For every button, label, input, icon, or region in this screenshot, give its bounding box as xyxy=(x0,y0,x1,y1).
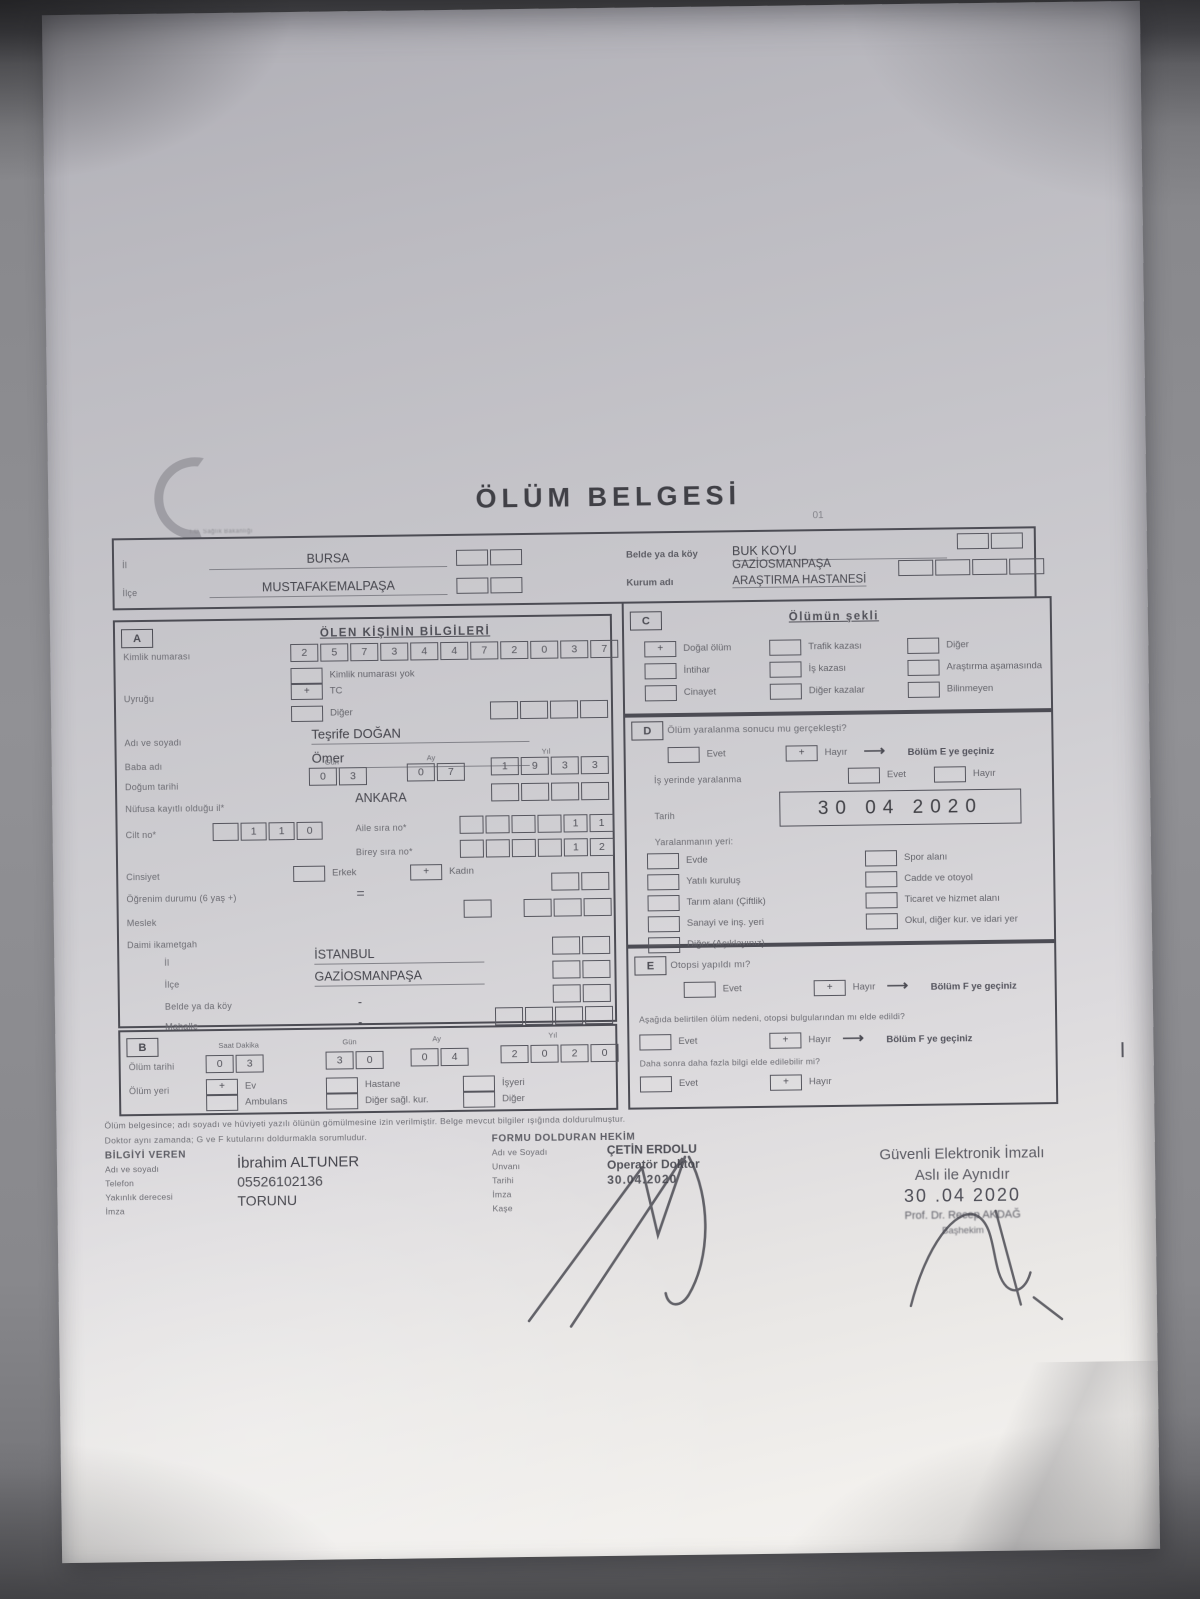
nationality-code-boxes xyxy=(490,700,608,720)
at-home-option: Evde xyxy=(647,852,765,869)
digit-box xyxy=(553,984,581,1002)
digit-box: 0 xyxy=(590,1044,618,1062)
checkbox xyxy=(907,637,939,653)
informant-phone-label: Telefon xyxy=(105,1178,134,1188)
occupation-label: Meslek xyxy=(127,918,157,928)
digit-box: 1 xyxy=(241,822,267,840)
trade-service-area-label: Ticaret ve hizmet alanı xyxy=(904,893,999,905)
ilce-value: MUSTAFAKEMALPAŞA xyxy=(262,579,395,595)
arrow-icon: ⟶ xyxy=(887,981,909,991)
il-value: BURSA xyxy=(306,551,349,566)
ilce-code-boxes xyxy=(456,577,522,594)
digit-box: 1 xyxy=(564,838,588,856)
digit-box: 4 xyxy=(440,1048,468,1066)
digit-box: 3 xyxy=(380,643,408,661)
goto-section-e-note: Bölüm E ye geçiniz xyxy=(908,746,995,758)
registry-province-label: Nüfusa kayıtlı olduğu il* xyxy=(125,803,224,814)
digit-box: 2 xyxy=(290,644,318,662)
digit-box xyxy=(552,936,580,954)
il-code-boxes xyxy=(456,549,522,566)
residence-belde-value: - xyxy=(358,995,362,1009)
checkbox-checked: + xyxy=(291,683,323,699)
code-box xyxy=(935,559,970,575)
occupation-code-boxes xyxy=(524,898,612,917)
findings-yes-option: Evet xyxy=(639,1034,697,1050)
stamp-line-1: Güvenli Elektronik İmzalı xyxy=(837,1144,1087,1164)
arrow-icon: ⟶ xyxy=(864,746,886,756)
education-value: = xyxy=(356,885,364,901)
natural-death-label: Doğal ölüm xyxy=(683,642,731,654)
digit-box xyxy=(495,1007,523,1025)
other-label: Diğer xyxy=(330,707,353,718)
digit-box: 1 xyxy=(268,822,294,840)
year-header: Yıl xyxy=(548,1031,557,1040)
checkbox xyxy=(647,852,679,868)
id-number-boxes: 2 5 7 3 4 4 7 2 0 3 7 xyxy=(290,640,618,662)
page-code: 01 xyxy=(812,510,823,521)
digit-box: 0 xyxy=(407,763,435,781)
section-c-letter: C xyxy=(630,611,662,630)
residential-institution-label: Yatılı kuruluş xyxy=(686,875,740,887)
natural-death-option: + Doğal ölüm xyxy=(644,640,731,656)
school-institution-label: Okul, diğer kur. ve idari yer xyxy=(905,914,1018,926)
residence-ilce-boxes xyxy=(552,960,610,979)
gender-label: Cinsiyet xyxy=(126,872,160,882)
digit-box: 0 xyxy=(296,822,322,840)
digit-box xyxy=(511,815,535,833)
digit-box xyxy=(524,899,552,917)
hospital-label: Hastane xyxy=(365,1079,401,1090)
autopsy-findings-question: Aşağıda belirtilen ölüm nedeni, otopsi b… xyxy=(639,1011,905,1024)
section-b-death-date: B Saat Dakika Gün Ay Yıl Ölüm tarihi 0 3… xyxy=(118,1024,618,1117)
month-header: Ay xyxy=(427,753,436,762)
digit-box: 9 xyxy=(521,757,549,775)
no-label: Hayır xyxy=(853,981,876,992)
section-e-autopsy: E Otopsi yapıldı mı? Evet + Hayır ⟶ Bölü… xyxy=(626,941,1058,1110)
name-label: Adı ve soyadı xyxy=(124,737,181,748)
physician-date-label: Tarihi xyxy=(492,1175,514,1185)
informant-relation-label: Yakınlık derecesi xyxy=(105,1192,173,1203)
death-month-boxes: 0 4 xyxy=(410,1048,468,1067)
residence-il-boxes xyxy=(552,936,610,955)
residence-ilce-value: GAZİOSMANPAŞA xyxy=(314,968,422,983)
education-label: Öğrenim durumu (6 yaş +) xyxy=(126,893,236,904)
checkbox xyxy=(848,767,880,783)
code-box xyxy=(991,532,1023,548)
digit-box: 7 xyxy=(437,763,465,781)
belde-value: BUK KOYU xyxy=(732,543,797,558)
place-hospital-option: Hastane xyxy=(326,1077,401,1093)
checkbox xyxy=(865,850,897,866)
education-code-boxes xyxy=(551,872,609,891)
place-home-option: + Ev xyxy=(206,1079,256,1095)
nationality-tc-option: + TC xyxy=(291,683,343,699)
school-institution-option: Okul, diğer kur. ve idari yer xyxy=(866,912,1018,929)
stray-pen-mark xyxy=(1121,1042,1123,1057)
digit-box xyxy=(538,839,562,857)
no-label: Hayır xyxy=(808,1034,831,1045)
other-label: Diğer xyxy=(946,639,969,650)
nationality-label: Uyruğu xyxy=(124,694,154,704)
section-d-injury: D Ölüm yaralanma sonucu mu gerçekleşti? … xyxy=(623,708,1056,947)
occupation-code-box xyxy=(464,899,492,917)
other-facility-label: Diğer sağl. kur. xyxy=(365,1094,429,1106)
under-investigation-option: Araştırma aşamasında xyxy=(907,658,1042,675)
home-label: Ev xyxy=(245,1081,256,1092)
belde-code-boxes xyxy=(957,532,1023,549)
section-e-letter: E xyxy=(634,956,666,975)
residence-il-value: İSTANBUL xyxy=(314,947,374,962)
checkbox xyxy=(866,913,898,929)
place-other-facility-option: Diğer sağl. kur. xyxy=(326,1092,429,1108)
code-box xyxy=(898,560,933,576)
registry-province-value: ANKARA xyxy=(355,791,407,806)
injury-date-label: Tarih xyxy=(654,811,675,821)
checkbox xyxy=(326,1093,358,1109)
digit-box xyxy=(491,783,519,801)
place-other-option: Diğer xyxy=(463,1091,525,1107)
digit-box xyxy=(490,701,518,719)
checkbox xyxy=(463,1091,495,1107)
digit-box xyxy=(583,984,611,1002)
checkbox xyxy=(291,705,323,721)
checkbox-checked: + xyxy=(769,1032,801,1048)
doctor-responsibility-note: Doktor aynı zamanda; G ve F kutularını d… xyxy=(105,1132,367,1145)
photographed-death-certificate: T.C. Sağlık Bakanlığı ÖLÜM BELGESİ 01 İl… xyxy=(0,0,1200,1599)
more-info-question: Daha sonra daha fazla bilgi elde edilebi… xyxy=(640,1056,821,1068)
birth-day-boxes: 0 3 xyxy=(309,767,367,786)
suicide-label: İntihar xyxy=(683,665,710,676)
homicide-label: Cinayet xyxy=(684,686,716,697)
section-a-deceased-info: A ÖLEN KİŞİNİN BİLGİLERİ Kimlik numarası… xyxy=(113,614,617,1028)
time-header: Saat Dakika xyxy=(218,1041,259,1051)
digit-box: 3 xyxy=(551,756,579,774)
other-label: Diğer xyxy=(502,1093,525,1104)
name-value: Teşrife DOĞAN xyxy=(311,726,401,742)
checkbox xyxy=(684,981,716,997)
month-header: Ay xyxy=(432,1034,441,1043)
day-header: Gün xyxy=(342,1037,356,1046)
registry-code-boxes xyxy=(491,782,609,802)
code-box xyxy=(972,559,1007,575)
injury-date-value: 30 04 2020 xyxy=(818,796,983,820)
person-order-boxes: 1 2 xyxy=(460,838,614,858)
kurum-value-line2: ARAŞTIRMA HASTANESİ xyxy=(732,574,866,589)
digit-box xyxy=(459,816,483,834)
checkbox xyxy=(908,681,940,697)
digit-box: 0 xyxy=(410,1048,438,1066)
death-date-label: Ölüm tarihi xyxy=(129,1062,175,1073)
checkbox xyxy=(290,667,322,683)
code-box xyxy=(456,577,488,593)
checkbox xyxy=(907,659,939,675)
death-year-boxes: 2 0 2 0 xyxy=(500,1044,618,1064)
informant-signature-label: İmza xyxy=(106,1206,125,1216)
residence-belde-boxes xyxy=(553,984,611,1003)
injury-question: Ölüm yaralanma sonucu mu gerçekleşti? xyxy=(667,723,847,736)
name-underline: Teşrife DOĞAN xyxy=(311,723,529,745)
industry-construction-label: Sanayi ve inş. yeri xyxy=(687,917,764,929)
yes-label: Evet xyxy=(679,1078,698,1089)
residence-label: Daimi ikametgah xyxy=(127,939,197,950)
digit-box: 3 xyxy=(236,1054,264,1072)
family-order-label: Aile sıra no* xyxy=(356,823,407,834)
traffic-accident-option: Trafik kazası xyxy=(769,639,864,655)
other-accidents-option: Diğer kazalar xyxy=(770,683,865,699)
no-id-option: Kimlik numarası yok xyxy=(290,666,414,683)
day-header: Gün xyxy=(325,757,339,766)
digit-box: 4 xyxy=(410,642,438,660)
yes-label: Evet xyxy=(887,769,906,780)
birth-year-boxes: 1 9 3 3 xyxy=(491,756,609,776)
death-place-label: Ölüm yeri xyxy=(129,1086,169,1097)
checkbox-checked: + xyxy=(814,979,846,995)
section-d-letter: D xyxy=(631,721,663,740)
female-label: Kadın xyxy=(449,866,474,877)
checkbox xyxy=(769,661,801,677)
digit-box: 2 xyxy=(590,838,614,856)
digit-box xyxy=(580,700,608,718)
checkbox-checked: + xyxy=(770,1074,802,1090)
autopsy-question: Otopsi yapıldı mı? xyxy=(670,959,750,971)
il-underline: BURSA xyxy=(209,548,447,570)
physician-rank-label: Unvanı xyxy=(492,1161,520,1171)
checkbox-checked: + xyxy=(644,641,676,657)
work-injury-yes-option: Evet xyxy=(848,767,906,783)
digit-box: 1 xyxy=(589,814,613,832)
physician-name-label: Adı ve Soyadı xyxy=(492,1147,548,1158)
digit-box: 3 xyxy=(560,640,588,658)
digit-box xyxy=(555,1006,583,1024)
farm-area-option: Tarım alanı (Çiftlik) xyxy=(647,894,765,911)
residence-mahalle-boxes xyxy=(495,1006,613,1026)
farm-area-label: Tarım alanı (Çiftlik) xyxy=(687,896,766,908)
digit-box xyxy=(460,840,484,858)
residence-ilce-underline: GAZİOSMANPAŞA xyxy=(314,966,484,987)
place-ambulance-option: Ambulans xyxy=(206,1094,287,1110)
code-box xyxy=(957,533,989,549)
yes-label: Evet xyxy=(678,1036,697,1047)
traffic-accident-label: Trafik kazası xyxy=(808,641,862,653)
digit-box: 0 xyxy=(530,641,558,659)
more-info-yes-option: Evet xyxy=(640,1076,698,1092)
digit-box: 3 xyxy=(339,767,367,785)
kurum-value-line1: GAZİOSMANPAŞA xyxy=(732,558,831,571)
digit-box xyxy=(520,701,548,719)
stamp-official-title: Başhekim xyxy=(838,1224,1088,1238)
death-time-boxes: 0 3 xyxy=(206,1054,264,1073)
checkbox-checked: + xyxy=(410,864,442,880)
digit-box xyxy=(581,872,609,890)
unknown-option: Bilinmeyen xyxy=(908,680,1043,697)
no-id-label: Kimlik numarası yok xyxy=(330,668,415,680)
belde-label: Belde ya da köy xyxy=(626,549,698,561)
digit-box xyxy=(552,960,580,978)
informant-relation-value: TORUNU xyxy=(237,1192,297,1209)
goto-section-f-note: Bölüm F ye geçiniz xyxy=(886,1033,972,1045)
injury-date-box: 30 04 2020 xyxy=(779,789,1021,827)
section-c-title: Ölümün şekli xyxy=(744,610,924,624)
checkbox xyxy=(206,1094,238,1110)
yes-label: Evet xyxy=(707,748,726,759)
checkbox xyxy=(640,1076,672,1092)
gender-female-option: + Kadın xyxy=(410,864,474,880)
kurum-label: Kurum adı xyxy=(626,577,673,589)
digit-box: 7 xyxy=(350,643,378,661)
manner-column-1: + Doğal ölüm İntihar Cinayet xyxy=(644,640,732,700)
injury-place-column-2: Spor alanı Cadde ve otoyol Ticaret ve hi… xyxy=(865,849,1018,929)
checkbox xyxy=(865,871,897,887)
digit-box: 3 xyxy=(581,756,609,774)
trade-service-area-option: Ticaret ve hizmet alanı xyxy=(865,891,1017,908)
checkbox xyxy=(769,639,801,655)
nationality-other-option: Diğer xyxy=(291,705,353,721)
il-label: İl xyxy=(122,560,127,570)
ilce-label: İlçe xyxy=(122,588,137,598)
digit-box: 4 xyxy=(440,642,468,660)
sports-area-label: Spor alanı xyxy=(904,851,947,863)
residential-institution-option: Yatılı kuruluş xyxy=(647,873,765,890)
physician-signature-label: İmza xyxy=(492,1189,511,1199)
stamp-line-2: Aslı ile Aynıdır xyxy=(837,1165,1087,1185)
digit-box: 2 xyxy=(500,1045,528,1063)
checkbox-checked: + xyxy=(206,1078,238,1094)
ilce-underline: MUSTAFAKEMALPAŞA xyxy=(209,576,447,598)
no-label: Hayır xyxy=(809,1076,832,1087)
digit-box xyxy=(585,1006,613,1024)
checkbox xyxy=(463,1075,495,1091)
male-label: Erkek xyxy=(332,867,356,878)
manner-column-3: Diğer Araştırma aşamasında Bilinmeyen xyxy=(907,636,1042,697)
volume-no-boxes: 1 1 0 xyxy=(213,822,323,841)
code-box xyxy=(456,549,488,565)
volume-no-label: Cilt no* xyxy=(126,830,157,840)
residence-ilce-label: İlçe xyxy=(165,980,180,990)
paper-sheet: T.C. Sağlık Bakanlığı ÖLÜM BELGESİ 01 İl… xyxy=(42,1,1160,1563)
tc-label: TC xyxy=(330,685,343,696)
kurum-code-boxes xyxy=(898,558,1044,576)
informant-name-value: İbrahim ALTUNER xyxy=(237,1153,359,1172)
checkbox xyxy=(326,1077,358,1093)
digit-box xyxy=(525,1007,553,1025)
physician-name-value: ÇETİN ERDOLU xyxy=(607,1142,697,1157)
street-highway-option: Cadde ve otoyol xyxy=(865,870,1017,887)
manner-column-2: Trafik kazası İş kazası Diğer kazalar xyxy=(769,639,865,699)
informant-name-label: Adı ve soyadı xyxy=(105,1164,159,1175)
autopsy-no-option: + Hayır xyxy=(814,979,876,995)
digit-box xyxy=(584,898,612,916)
work-accident-option: İş kazası xyxy=(769,661,864,677)
homicide-option: Cinayet xyxy=(645,684,732,700)
injury-yes-option: Evet xyxy=(668,746,726,762)
yes-label: Evet xyxy=(723,983,742,994)
health-ministry-crescent-logo xyxy=(154,457,237,540)
stamp-date: 30 .04 2020 xyxy=(837,1184,1087,1208)
suicide-option: İntihar xyxy=(644,662,731,678)
checkbox xyxy=(770,683,802,699)
digit-box xyxy=(581,782,609,800)
checkbox xyxy=(648,915,680,931)
code-box xyxy=(490,549,522,565)
findings-no-option: + Hayır xyxy=(769,1032,831,1048)
digit-box xyxy=(213,823,239,841)
code-box xyxy=(490,577,522,593)
workplace-label: İşyeri xyxy=(502,1077,525,1088)
checkbox xyxy=(647,873,679,889)
digit-box xyxy=(551,872,579,890)
checkbox-checked: + xyxy=(786,745,818,761)
digit-box xyxy=(521,783,549,801)
goto-section-f-note: Bölüm F ye geçiniz xyxy=(931,981,1017,993)
work-accident-label: İş kazası xyxy=(808,663,846,674)
injury-no-option: + Hayır xyxy=(786,745,848,761)
death-certificate-form: T.C. Sağlık Bakanlığı ÖLÜM BELGESİ 01 İl… xyxy=(42,1,1160,1563)
other-accidents-label: Diğer kazalar xyxy=(809,685,865,697)
code-box xyxy=(1009,558,1044,574)
at-home-label: Evde xyxy=(686,855,708,866)
industry-construction-option: Sanayi ve inş. yeri xyxy=(648,915,766,932)
no-label: Hayır xyxy=(973,768,996,779)
digit-box: 3 xyxy=(326,1051,354,1069)
form-title: ÖLÜM BELGESİ xyxy=(436,480,780,516)
section-c-manner-of-death: C Ölümün şekli + Doğal ölüm İntihar Cina… xyxy=(622,596,1053,718)
paper-fold-shadow xyxy=(860,1361,1160,1553)
digit-box: 1 xyxy=(491,757,519,775)
ambulance-label: Ambulans xyxy=(245,1096,287,1108)
digit-box xyxy=(554,898,582,916)
place-workplace-option: İşyeri xyxy=(463,1075,525,1091)
digit-box: 0 xyxy=(356,1051,384,1069)
digit-box: 7 xyxy=(470,641,498,659)
id-number-label: Kimlik numarası xyxy=(123,651,190,662)
other-option: Diğer xyxy=(907,636,1042,653)
digit-box: 2 xyxy=(500,641,528,659)
checkbox xyxy=(293,865,325,881)
section-a-letter: A xyxy=(121,629,153,648)
digit-box: 2 xyxy=(560,1044,588,1062)
informant-title: BİLGİYİ VEREN xyxy=(105,1149,186,1161)
checkbox xyxy=(645,685,677,701)
arrow-icon: ⟶ xyxy=(842,1034,864,1044)
digit-box xyxy=(550,700,578,718)
section-b-letter: B xyxy=(126,1038,158,1057)
checkbox xyxy=(668,746,700,762)
digit-box: 5 xyxy=(320,643,348,661)
stamp-official-name: Prof. Dr. Recep AKDAĞ xyxy=(838,1208,1088,1223)
residence-il-label: İl xyxy=(164,958,169,968)
digit-box xyxy=(582,960,610,978)
digit-box: 0 xyxy=(309,767,337,785)
digit-box xyxy=(486,839,510,857)
gender-male-option: Erkek xyxy=(293,865,356,881)
checkbox xyxy=(934,766,966,782)
digit-box: 0 xyxy=(530,1045,558,1063)
year-header: Yıl xyxy=(542,747,551,756)
physician-rank-value: Operatör Doktor xyxy=(607,1157,700,1172)
digit-box: 7 xyxy=(590,640,618,658)
father-name-label: Baba adı xyxy=(125,762,163,772)
digit-box xyxy=(485,815,509,833)
birth-month-boxes: 0 7 xyxy=(407,763,465,782)
street-highway-label: Cadde ve otoyol xyxy=(904,872,973,884)
digit-box xyxy=(551,782,579,800)
digit-box xyxy=(537,815,561,833)
autopsy-yes-option: Evet xyxy=(684,981,742,997)
checkbox xyxy=(865,892,897,908)
physician-stamp-label: Kaşe xyxy=(493,1203,513,1213)
checkbox xyxy=(647,894,679,910)
physician-date-value: 30.04.2020 xyxy=(607,1172,677,1187)
